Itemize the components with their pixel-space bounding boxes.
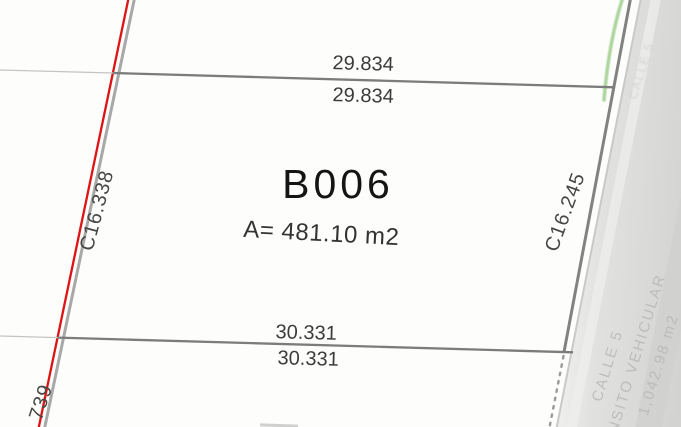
dim-bottom-inner: 30.331 [275,321,337,345]
parcel-id: B006 [282,161,394,207]
dim-bottom-outer: 30.331 [277,347,339,371]
dim-top-outer: 29.834 [332,52,394,76]
dim-top-inner: 29.834 [332,84,394,108]
plan-viewport: CALLE 5 TRANSITO VEHICULAR 1,042.98 m2 C… [0,0,681,427]
site-plan-canvas: CALLE 5 TRANSITO VEHICULAR 1,042.98 m2 C… [0,0,681,427]
